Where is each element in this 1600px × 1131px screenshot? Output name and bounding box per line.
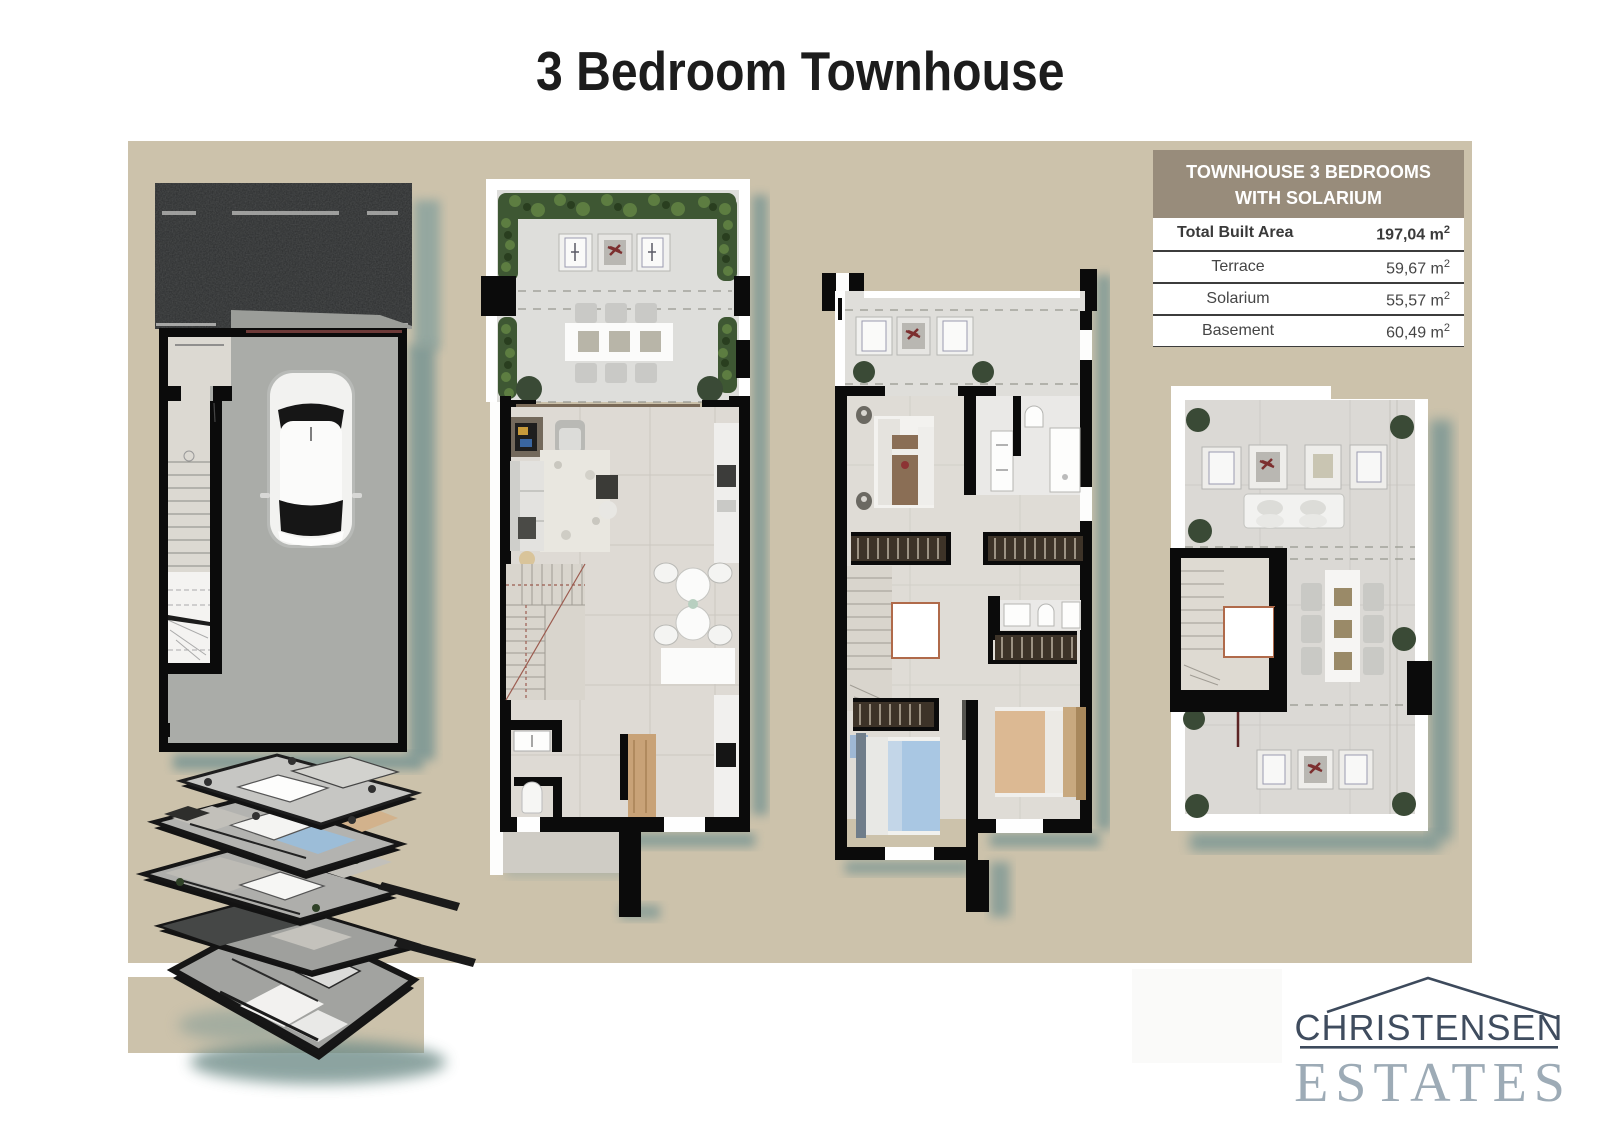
svg-text:ESTATES: ESTATES <box>1294 1052 1572 1114</box>
svg-text:CHRISTENSEN: CHRISTENSEN <box>1294 1007 1563 1048</box>
